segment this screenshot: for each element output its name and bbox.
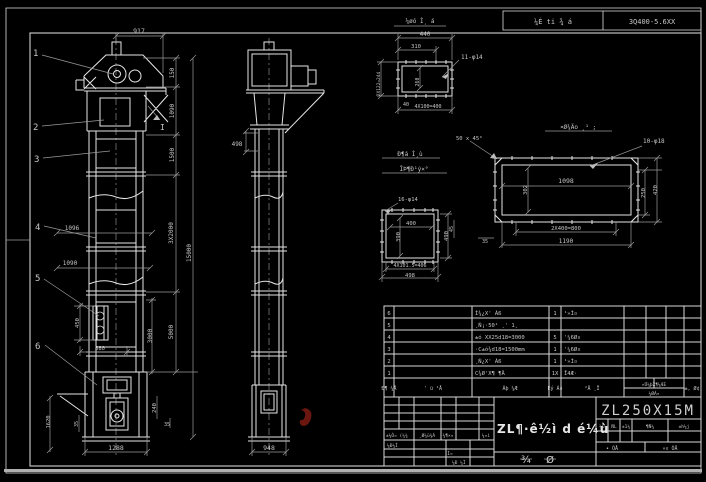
dim-1098: 1098 — [558, 177, 574, 185]
row-name: C¾Ø'X¶ ¶Ä — [475, 370, 505, 377]
dim-390: 390 — [396, 232, 402, 242]
callout-2: 2 — [33, 123, 38, 133]
callout-3: 3 — [34, 155, 39, 165]
discharge-title: ¤Ø¾Äo ¸¹ ; — [560, 124, 596, 131]
inlet-flange-lines — [396, 60, 454, 98]
red-stamp-mark — [300, 408, 312, 426]
row-name: ·C±ó¾d18=1500mm — [475, 346, 525, 353]
revision-header-1: ±¼Ô¤ (¼¾ — [386, 432, 408, 439]
dim-3x2000: 3X2000 — [168, 222, 175, 244]
sign-label-2: Ì¤ — [447, 450, 453, 457]
row-qty: 1X — [552, 371, 559, 377]
stamp-char-2: Ø — [546, 454, 554, 466]
row-no: 6 — [387, 311, 390, 317]
dim-1096: 1096 — [65, 225, 80, 232]
callout-5: 5 — [35, 274, 40, 284]
dim-917: 917 — [133, 27, 145, 35]
dim-498-bottom: 498 — [405, 273, 415, 279]
dim-400: 400 — [406, 221, 416, 227]
dim-450: 450 — [75, 318, 81, 328]
header-qty: Êý Á¤ — [547, 384, 562, 392]
row-qty: 1 — [553, 347, 556, 353]
dim-4x100: 4X100=400 — [414, 104, 441, 110]
cad-drawing-canvas: ¼É ti ¾ á 3Q400-5.6XX 1 2 3 4 5 6 917 15… — [0, 0, 706, 482]
square-flange-lines — [380, 208, 440, 264]
stage-cell-1: ¼Ð — [599, 424, 605, 430]
header-left-label: ¼É ti ¾ á — [534, 17, 572, 26]
row-no: 2 — [387, 359, 390, 365]
header-right-label: 3Q400-5.6XX — [629, 18, 676, 26]
dim-5000: 5000 — [168, 324, 175, 339]
inlet-flange-detail: ¼øó Ì¸ á 440 310 11-φ14 2X122=244 260 40… — [376, 18, 483, 114]
callout-6: 6 — [35, 342, 40, 352]
stage-cell-3: ±1¼ — [622, 424, 630, 430]
revision-header-4: ¼¤ì — [482, 432, 490, 439]
dim-150: 150 — [169, 67, 176, 78]
dim-440: 440 — [420, 31, 431, 38]
header-weight-bottom: ¼ØÁ¤ — [649, 390, 660, 397]
discharge-flange-lines — [493, 156, 640, 224]
discharge-flange-detail: ¤Ø¾Äo ¸¹ ; 50 x 45° 10-φ18 1098 302 250 … — [449, 124, 665, 248]
dim-260: 260 — [415, 77, 421, 86]
header-remark: ±, Ø¢ — [684, 385, 699, 392]
sign-label-1: ¼Ð¼Ì — [387, 442, 398, 449]
header-name: Ãþ ¼Æ — [502, 385, 517, 392]
sheet-count-left: • ÕÅ — [606, 445, 618, 452]
dim-250: 250 — [641, 188, 647, 198]
square-flange-detail: Ð¶á Ì¸ù ÎÞ¶Ð¹ý×° 16-φ14 400 390 490 4X10… — [380, 151, 452, 282]
discharge-holes-label: 10-φ18 — [643, 138, 665, 145]
callout-4: 4 — [35, 223, 40, 233]
dim-4x101: 4X101.5=406 — [393, 263, 426, 269]
row-material: '¼6Ø¤ — [564, 346, 581, 353]
dim-45: 45 — [449, 226, 455, 232]
dim-1090-right: 1090 — [169, 103, 176, 118]
dim-948: 948 — [263, 444, 275, 452]
side-dim-lines — [244, 131, 286, 456]
dim-35-gap: 35 — [482, 239, 488, 245]
front-view: 1 2 3 4 5 6 917 150 1090 1500 3X2000 500… — [33, 27, 198, 458]
chamfer-label: 50 x 45° — [456, 136, 483, 142]
stage-cell-2: ÑL — [611, 423, 617, 430]
row-no: 4 — [387, 335, 391, 341]
square-label-1: Ð¶á Ì¸ù — [397, 151, 423, 158]
row-no: 5 — [387, 323, 390, 329]
title-block: ±¼Ô¤ (¼¾ ¸Ø¼ü¾Á ¼¶×¤ ¼¤ì ¼Ð¼Ì Ì¤ ¼Ð ¼Ì Z… — [384, 397, 701, 466]
dim-1090-mid: 1090 — [63, 260, 78, 267]
square-holes-label: 16-φ14 — [398, 197, 419, 203]
header-strip: ¼É ti ¾ á 3Q400-5.6XX — [534, 17, 676, 26]
row-name: ¸Ñ¿X' Áß — [475, 358, 502, 365]
dim-420: 420 — [653, 185, 659, 195]
head-shaft-circle — [114, 71, 121, 78]
header-no: Ð¶ ¼Å — [381, 385, 396, 392]
front-body-lines — [57, 42, 168, 441]
row-qty: 5 — [553, 335, 556, 341]
row-qty: 1 — [553, 311, 556, 317]
revision-header-2: ¸Ø¼ü¾Á — [419, 432, 436, 439]
model-number: ZL250X15M — [601, 403, 695, 419]
row-qty: 1 — [553, 359, 556, 365]
dim-2x400: 2X400=800 — [551, 226, 581, 232]
sign-label-3: ¼Ð ¼Ì — [452, 459, 466, 466]
dim-3000: 3000 — [147, 328, 154, 343]
dim-1288: 1288 — [108, 444, 124, 452]
dim-1620: 1620 — [46, 415, 52, 428]
inlet-title: ¼øó Ì¸ á — [406, 18, 435, 25]
inlet-holes-label: 11-φ14 — [461, 54, 483, 61]
row-material: ¹»Ì¤ — [564, 358, 577, 365]
row-no: 1 — [387, 371, 390, 377]
dim-35-left: 35 — [74, 421, 80, 427]
dim-2x122: 2X122=244 — [376, 72, 382, 97]
row-name: ±ó XX25d18=3000 — [475, 334, 525, 341]
stamp-char-1: ¾ — [521, 455, 531, 466]
boot-handle-circle — [111, 410, 123, 422]
revision-header-3: ¼¶×¤ — [443, 433, 454, 439]
side-body-lines — [246, 42, 324, 441]
dim-302: 302 — [523, 185, 529, 195]
row-material: '¼6Ø¤ — [564, 334, 581, 341]
row-no: 3 — [387, 347, 390, 353]
stage-cell-5: ±h¼j — [679, 424, 690, 430]
parts-table: 6 Ì¾¿X' Áß 1 ¹»Ì¤ 5 ¸Ñ¡·50¹ ¸' 1¸ 4 ±ó X… — [381, 306, 701, 397]
dim-310: 310 — [411, 44, 421, 50]
dim-40: 40 — [403, 102, 409, 108]
square-label-2: ÎÞ¶Ð¹ý×° — [400, 166, 429, 173]
stage-cell-4: ¶Ñ¼ — [646, 423, 654, 430]
row-material: Î4Æ· — [564, 370, 577, 377]
discharge-arrowheads-icon — [490, 153, 598, 169]
dim-1500: 1500 — [169, 147, 176, 162]
dim-35-right: 35 — [164, 422, 170, 428]
callout-1: 1 — [33, 49, 38, 59]
cad-drawing-sheet: ¼É ti ¾ á 3Q400-5.6XX 1 2 3 4 5 6 917 15… — [0, 0, 706, 482]
side-view: 498 948 — [232, 38, 324, 458]
dim-240: 240 — [152, 403, 158, 413]
row-material: ¹»Ì¤ — [564, 310, 577, 317]
row-name: ¸Ñ¡·50¹ ¸' 1¸ — [475, 322, 518, 329]
inner-frame — [30, 33, 701, 466]
dim-1190: 1190 — [559, 238, 574, 245]
sheet-count-right: »¤ ÕÅ — [662, 445, 677, 452]
section-arrowhead-icon — [153, 115, 160, 120]
callout-leaders — [42, 55, 113, 385]
dim-498-side: 498 — [232, 141, 243, 148]
drawing-title: ZL¶·ê½ì d é¼ù — [497, 422, 609, 436]
dim-580: 580 — [95, 346, 105, 352]
header-weight-top: «Ü¼þX¶¼ÆE — [642, 381, 667, 388]
header-code: ' ü ¹Å — [424, 385, 442, 392]
row-name: Ì¾¿X' Áß — [475, 310, 502, 317]
dim-15000: 15000 — [186, 244, 193, 262]
header-material: ²Ä ¸Ï — [584, 385, 599, 392]
boot-handle-pin — [115, 414, 119, 418]
head-pulley-circle — [108, 65, 126, 83]
drive-wheel-circle — [129, 70, 141, 82]
section-mark-label: I — [160, 123, 165, 132]
